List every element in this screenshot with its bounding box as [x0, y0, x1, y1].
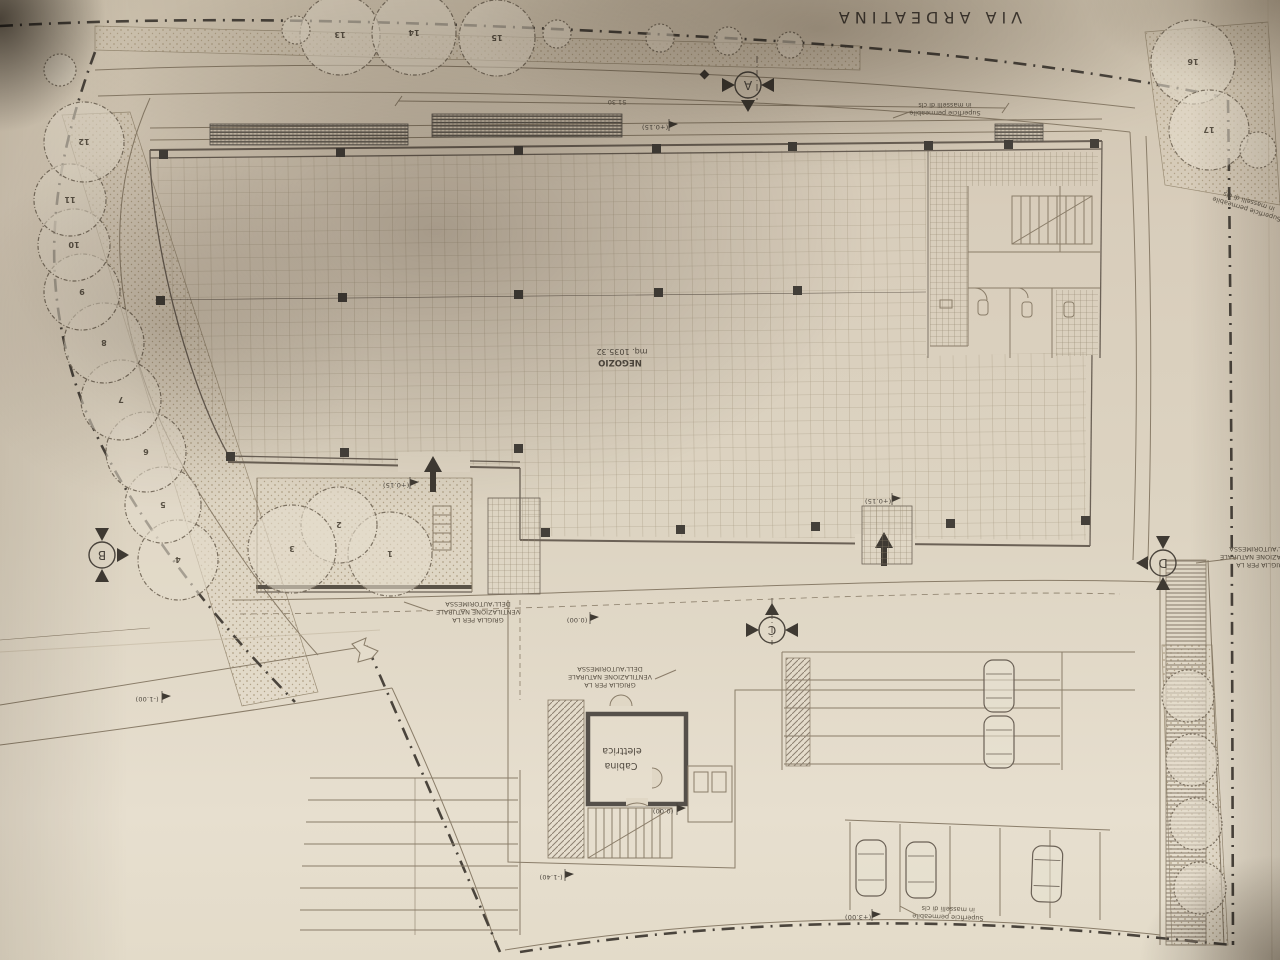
stairs-back-of-house: [1012, 196, 1092, 244]
svg-text:(0.00): (0.00): [567, 616, 588, 624]
svg-text:VENTILAZIONE NATURALE: VENTILAZIONE NATURALE: [436, 608, 520, 616]
tree-number: 6: [143, 447, 149, 456]
permeable-label-bottom: in masselli di cls Superficie permeabile: [900, 903, 984, 922]
level-marker: (-1.40): [539, 869, 574, 881]
svg-text:(-1.00): (-1.00): [135, 695, 158, 703]
svg-text:(+0.15): (+0.15): [865, 497, 891, 505]
svg-text:DELL'AUTORIMESSA: DELL'AUTORIMESSA: [577, 665, 643, 673]
level-marker: (0.00): [567, 612, 599, 624]
ventilation-grate: [210, 124, 408, 145]
svg-text:DELL'AUTORIMESSA: DELL'AUTORIMESSA: [445, 600, 511, 608]
tree-number: 10: [68, 240, 80, 249]
tree-number: 12: [78, 137, 89, 146]
svg-text:GRIGLIA PER LA: GRIGLIA PER LA: [1236, 561, 1280, 569]
svg-text:VENTILAZIONE NATURALE: VENTILAZIONE NATURALE: [568, 673, 652, 681]
dimension-value: 51.30: [608, 98, 627, 106]
ramp-direction-arrow: [352, 638, 378, 662]
back-of-house: [930, 152, 1100, 358]
section-letter-b: B: [98, 548, 106, 562]
site-plan-photo: 1 2 3 4 5 6 7 8 9 10 11 12 13 14 15 16 1…: [0, 0, 1280, 960]
section-letter-c: C: [768, 623, 776, 637]
tree-number: 9: [79, 287, 85, 296]
tree-number: 13: [334, 30, 345, 39]
tree-number: 1: [387, 549, 393, 558]
svg-text:DELL'AUTORIMESSA: DELL'AUTORIMESSA: [1229, 545, 1280, 553]
grille-label-1: DELL'AUTORIMESSA VENTILAZIONE NATURALE G…: [404, 600, 520, 624]
tree-number: 3: [289, 544, 295, 553]
site-plan-drawing: 1 2 3 4 5 6 7 8 9 10 11 12 13 14 15 16 1…: [0, 0, 1280, 960]
tree-number: 5: [160, 500, 166, 509]
section-letter-a: A: [743, 78, 752, 92]
grille-label-2: DELL'AUTORIMESSA VENTILAZIONE NATURALE G…: [568, 665, 676, 689]
svg-text:GRIGLIA PER LA: GRIGLIA PER LA: [452, 616, 504, 624]
ventilation-grate: [995, 124, 1043, 141]
tree-number: 11: [64, 195, 76, 204]
room-label-cabina-2: elettrica: [602, 745, 641, 756]
tree-number: 2: [336, 520, 342, 529]
level-marker: (+0.15): [642, 119, 678, 131]
tree-number: 14: [408, 28, 420, 37]
paved-walkway: [488, 498, 540, 594]
cabina-walls: [588, 714, 686, 804]
car: [856, 840, 886, 896]
ramp: [548, 700, 584, 858]
tree-number: 15: [491, 33, 503, 42]
paved-walkway: [862, 506, 912, 564]
svg-text:(-1.40): (-1.40): [539, 873, 562, 881]
svg-text:Superficie permeabile: Superficie permeabile: [909, 109, 980, 117]
room-label-cabina-1: Cabina: [605, 760, 638, 771]
svg-text:VENTILAZIONE NATURALE: VENTILAZIONE NATURALE: [1220, 553, 1280, 561]
annex: [688, 766, 732, 822]
tree-number: 4: [175, 555, 181, 564]
tree-number: 8: [101, 338, 107, 347]
level-marker: (-1.00): [135, 691, 171, 703]
section-marker-b: B: [89, 528, 129, 582]
section-letter-d: D: [1158, 556, 1167, 570]
survey-marker: [700, 70, 710, 80]
svg-text:(+0.15): (+0.15): [383, 481, 409, 489]
parking-bottom-left: [300, 770, 520, 935]
room-label-negozio: NEGOZIO: [598, 357, 642, 367]
no-parking-hatch: [786, 658, 810, 766]
svg-text:in masselli di cls: in masselli di cls: [918, 101, 972, 109]
permeable-label-top: in masselli di cls Superficie permeabile: [893, 101, 981, 118]
car: [906, 842, 936, 898]
room-area-negozio: mq. 1035.32: [596, 347, 647, 356]
car: [1031, 845, 1063, 902]
car: [984, 716, 1014, 768]
ventilation-grate: [432, 114, 622, 137]
svg-text:(0.00): (0.00): [653, 807, 674, 815]
svg-text:(+0.15): (+0.15): [642, 123, 668, 131]
tree-number: 16: [1187, 57, 1199, 66]
tree-number: 17: [1203, 125, 1214, 134]
svg-text:GRIGLIA PER LA: GRIGLIA PER LA: [584, 681, 636, 689]
parked-cars: [856, 660, 1063, 903]
tree-number: 7: [118, 395, 124, 404]
parking-upper: [782, 652, 1135, 770]
car: [984, 660, 1014, 712]
svg-text:(+3.00): (+3.00): [845, 913, 871, 921]
street-name: VIA ARDEATINA: [834, 8, 1022, 27]
